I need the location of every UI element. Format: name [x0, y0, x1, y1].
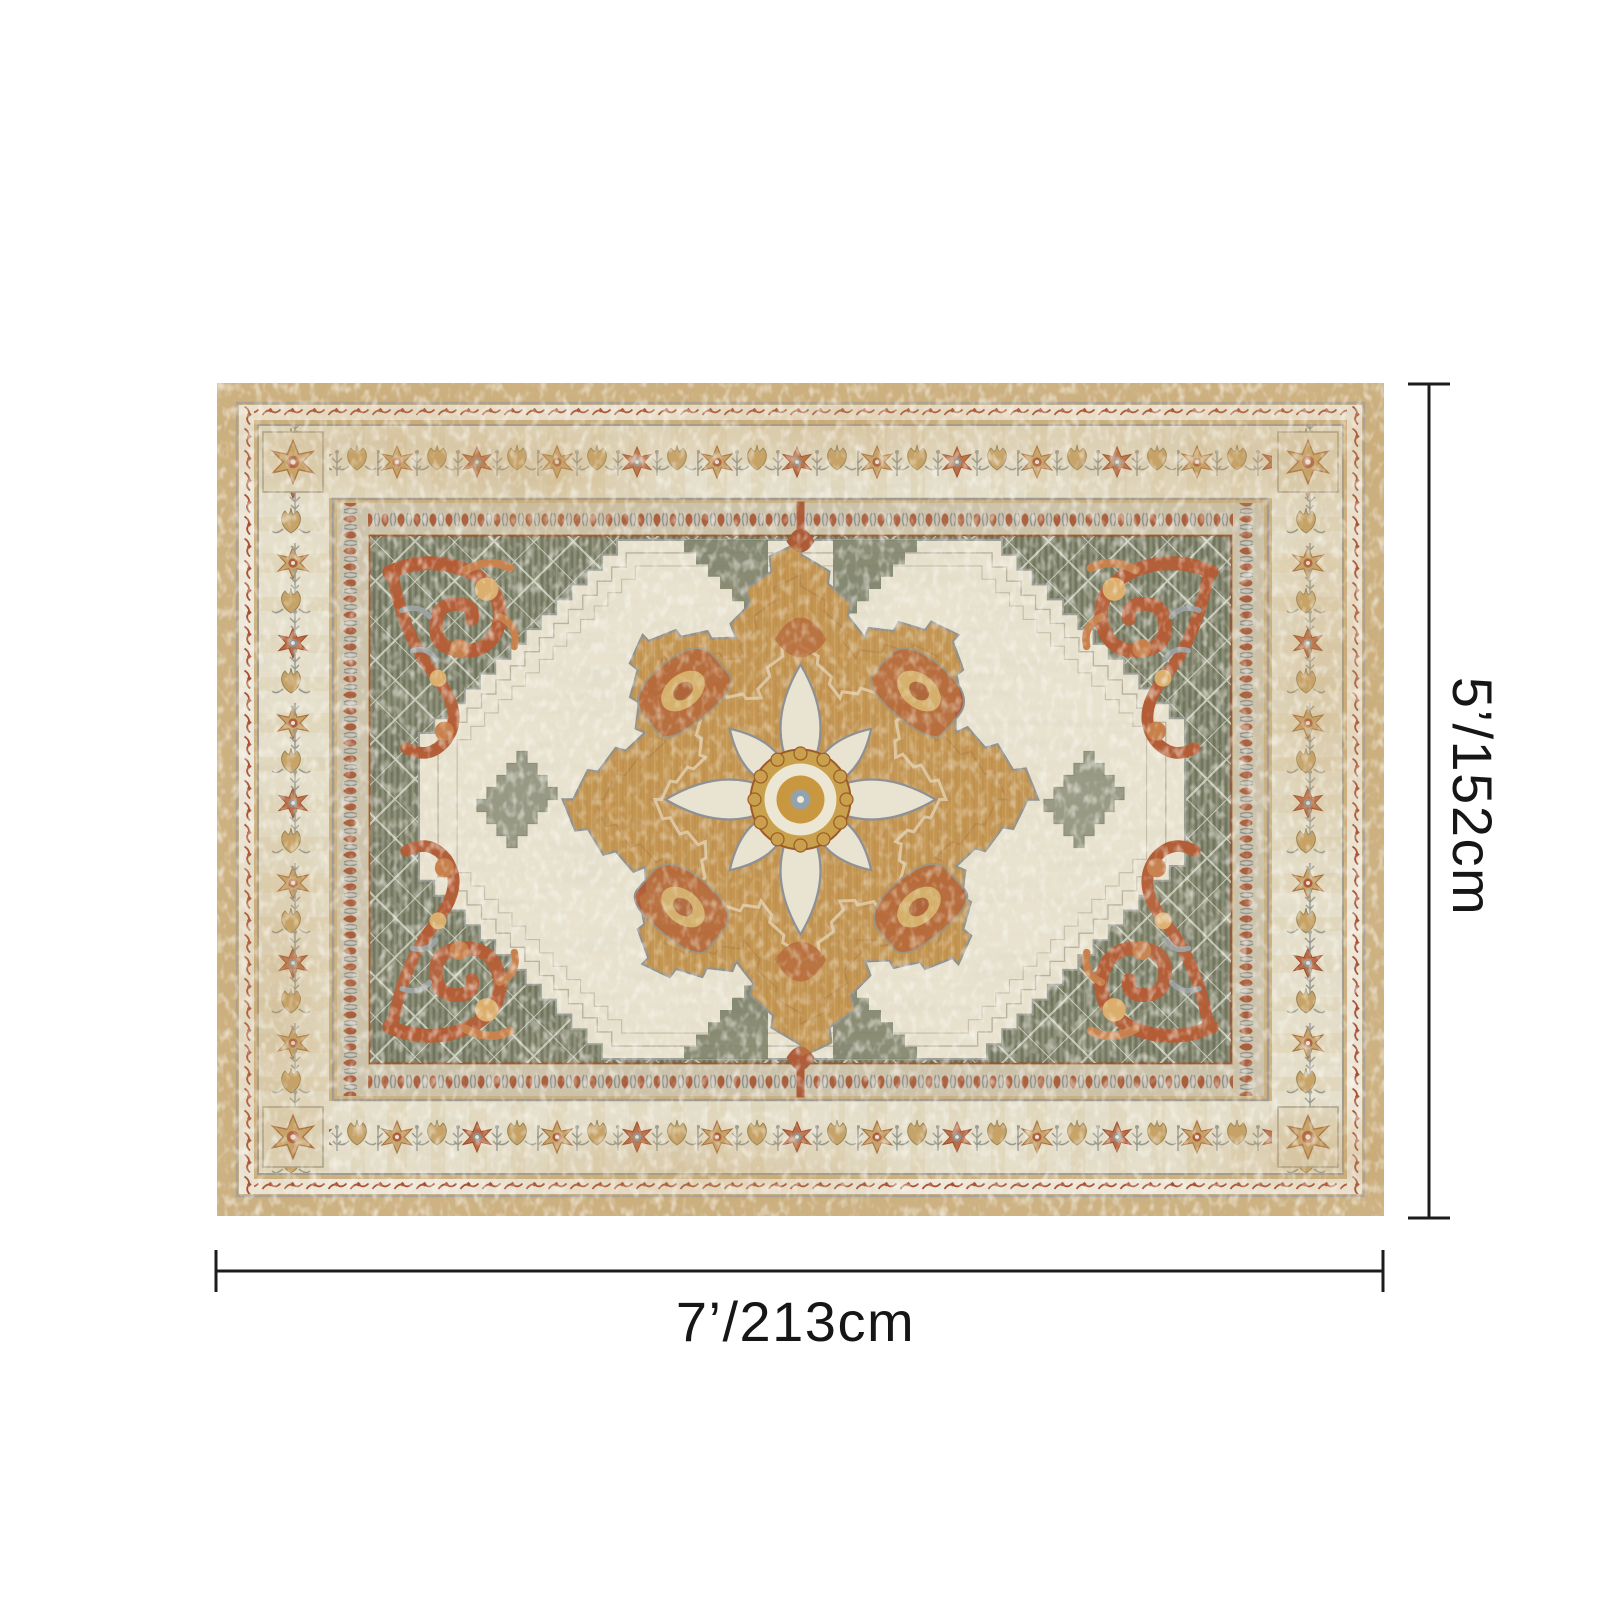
svg-text:7’/213cm: 7’/213cm: [676, 1290, 915, 1353]
svg-text:5’/152cm: 5’/152cm: [1441, 677, 1504, 916]
